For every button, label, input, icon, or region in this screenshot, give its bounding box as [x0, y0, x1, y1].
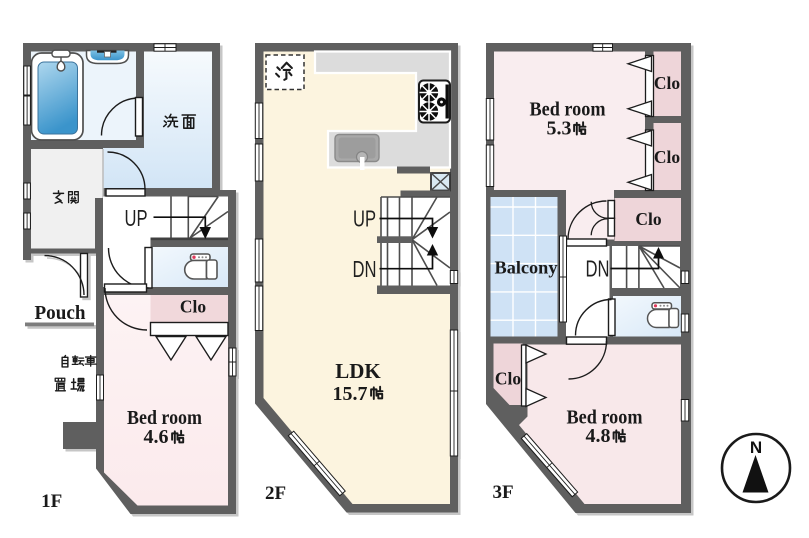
svg-text:DN: DN — [586, 256, 610, 282]
svg-text:UP: UP — [125, 205, 148, 231]
svg-text:2F: 2F — [265, 483, 286, 504]
svg-text:Clo: Clo — [654, 73, 681, 93]
svg-text:Balcony: Balcony — [495, 258, 558, 278]
svg-text:DN: DN — [353, 256, 377, 282]
svg-text:1F: 1F — [41, 491, 62, 512]
svg-text:3F: 3F — [492, 482, 513, 503]
svg-text:4.6: 4.6 — [144, 426, 169, 448]
svg-text:15.7: 15.7 — [333, 383, 368, 405]
svg-text:LDK: LDK — [335, 359, 381, 383]
svg-text:Clo: Clo — [495, 369, 522, 389]
svg-text:UP: UP — [353, 206, 376, 232]
svg-text:Clo: Clo — [635, 209, 662, 229]
svg-text:N: N — [750, 438, 762, 457]
svg-text:5.3: 5.3 — [547, 118, 572, 140]
svg-text:4.8: 4.8 — [586, 425, 611, 447]
svg-text:Clo: Clo — [180, 297, 207, 317]
svg-text:Pouch: Pouch — [35, 303, 86, 324]
svg-text:Clo: Clo — [654, 147, 681, 167]
